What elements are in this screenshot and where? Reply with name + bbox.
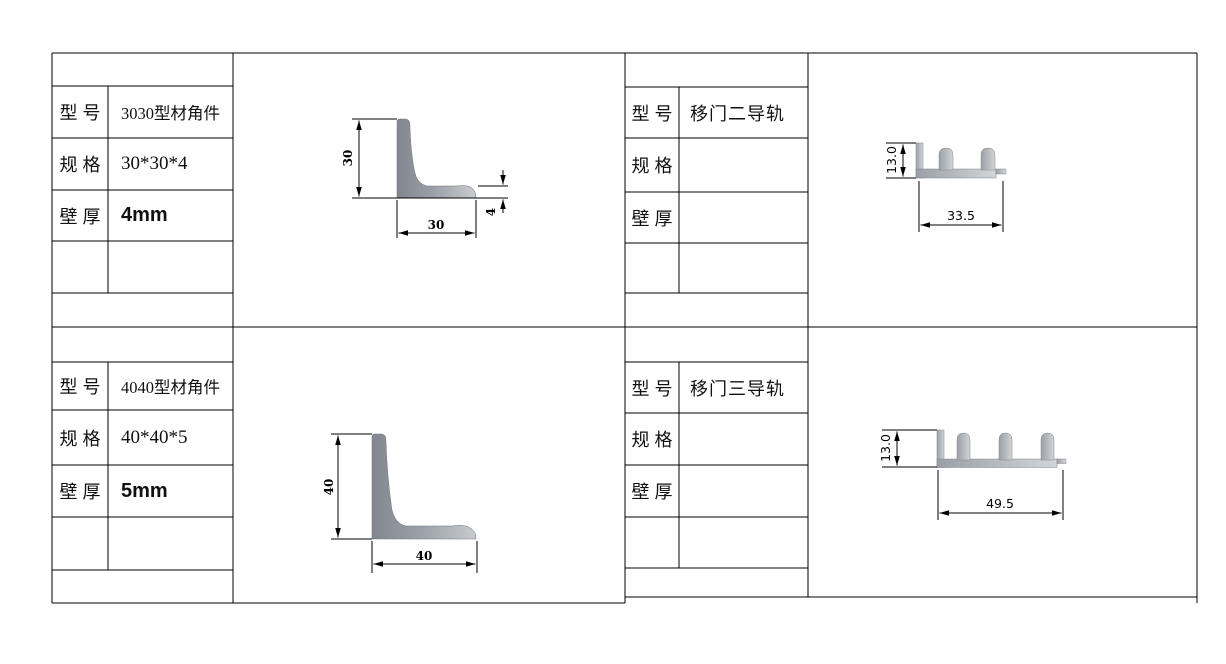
spec-label-wall: 壁厚 bbox=[625, 192, 679, 243]
spec-value-spec bbox=[679, 413, 808, 465]
spec-label-wall: 壁厚 bbox=[52, 465, 108, 517]
profile-spec-sheet: 30 30 4 13.0 33.5 bbox=[0, 0, 1226, 664]
l-angle-4040-profile bbox=[372, 434, 476, 539]
spec-value-model: 移门三导轨 bbox=[679, 362, 808, 413]
spec-label-model: 型号 bbox=[52, 362, 108, 410]
spec-label-wall: 壁厚 bbox=[52, 190, 108, 241]
l-angle-3030-profile bbox=[397, 119, 476, 198]
spec-label-wall: 壁厚 bbox=[625, 465, 679, 517]
dimension-lines bbox=[882, 430, 1063, 520]
track-3-channel-drawing: 13.0 49.5 bbox=[878, 430, 1066, 520]
spec-label-spec: 规格 bbox=[625, 138, 679, 192]
track-3-profile bbox=[937, 430, 1066, 468]
dim-height-label: 13.0 bbox=[884, 146, 899, 174]
dimension-lines bbox=[331, 434, 477, 573]
dim-height-label: 40 bbox=[322, 479, 336, 496]
spec-value-wall: 5mm bbox=[108, 465, 233, 517]
spec-label-model: 型号 bbox=[625, 87, 679, 138]
spec-label-model: 型号 bbox=[52, 86, 108, 138]
dim-width-label: 40 bbox=[416, 549, 433, 563]
spec-value-spec: 40*40*5 bbox=[108, 410, 233, 465]
spec-label-spec: 规格 bbox=[52, 138, 108, 190]
spec-value-model: 4040型材角件 bbox=[108, 362, 233, 410]
spec-label-spec: 规格 bbox=[52, 410, 108, 465]
spec-label-spec: 规格 bbox=[625, 413, 679, 465]
spec-value-wall bbox=[679, 465, 808, 517]
dim-height-label: 30 bbox=[341, 150, 355, 167]
spec-value-wall: 4mm bbox=[108, 190, 233, 241]
dim-height-label: 13.0 bbox=[878, 434, 893, 462]
l-angle-3030-drawing: 30 30 4 bbox=[341, 119, 508, 238]
dim-width-label: 49.5 bbox=[986, 496, 1014, 511]
spec-label-model: 型号 bbox=[625, 362, 679, 413]
l-angle-4040-drawing: 40 40 bbox=[322, 434, 477, 573]
spec-value-spec bbox=[679, 138, 808, 192]
spec-value-model: 3030型材角件 bbox=[108, 86, 233, 138]
track-2-channel-drawing: 13.0 33.5 bbox=[884, 143, 1006, 232]
spec-value-model: 移门二导轨 bbox=[679, 87, 808, 138]
dim-width-label: 33.5 bbox=[947, 208, 975, 223]
spec-value-spec: 30*30*4 bbox=[108, 138, 233, 190]
dim-thickness-label: 4 bbox=[484, 208, 498, 216]
spec-value-wall bbox=[679, 192, 808, 243]
track-2-profile bbox=[916, 143, 1006, 178]
dim-width-label: 30 bbox=[428, 218, 445, 232]
